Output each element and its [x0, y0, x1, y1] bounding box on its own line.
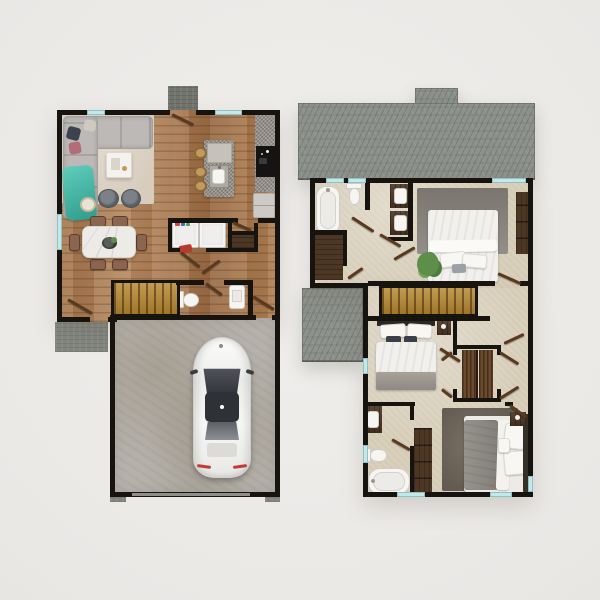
- closet-rod-2: [479, 350, 493, 398]
- car-roof-antenna: [220, 405, 224, 409]
- kitchen-laundry-wall-b: [258, 218, 275, 223]
- upper-bathtub-basin: [320, 191, 336, 229]
- dining-chair-right: [136, 234, 147, 251]
- bedroom2-right-wall: [453, 321, 457, 345]
- bedroom3-lamp: [515, 415, 520, 420]
- closet-bottom-wall: [453, 398, 501, 402]
- round-side-table: [80, 197, 96, 212]
- dining-chair-bottom-1: [90, 259, 106, 270]
- sf-window-left-1: [363, 358, 368, 374]
- lower-bath-top-wall: [363, 402, 415, 406]
- side-porch: [55, 322, 108, 352]
- sf-bottom-wall-c: [512, 492, 533, 497]
- refrigerator-seam: [253, 205, 275, 206]
- coffee-table-decor: [122, 166, 127, 171]
- closet-left-wall-b: [453, 389, 457, 402]
- island-sink: [212, 169, 225, 184]
- island-faucet: [218, 166, 221, 169]
- lower-bathtub-faucet: [371, 479, 375, 483]
- laundry-bottom-wall-b: [206, 248, 232, 252]
- garage-top-wall-b: [272, 315, 280, 320]
- main-roof: [298, 103, 535, 180]
- laundry-left-wall: [168, 218, 172, 252]
- ottoman-pouf-left: [98, 189, 119, 208]
- upper-bath-bottom-wall: [310, 230, 343, 235]
- sf-window-bottom-2: [490, 492, 512, 497]
- front-stoop: [168, 86, 198, 112]
- closet-rod-divider: [476, 350, 478, 398]
- cooktop-knob-1: [266, 150, 269, 153]
- lower-bath-sink: [367, 411, 379, 428]
- upper-bathtub-faucet: [326, 188, 330, 192]
- sf-top-wall-c: [366, 178, 492, 183]
- upper-toilet-bowl: [349, 188, 360, 205]
- teal-throw-blanket: [62, 165, 98, 221]
- garage-top-wall-a: [110, 315, 256, 320]
- half-bath-top-wall-a: [176, 280, 204, 285]
- ff-window-top-2: [215, 110, 242, 115]
- garage-pad-right: [265, 497, 280, 502]
- linen-closet-right-wall: [343, 230, 347, 266]
- ottoman-pouf-right: [121, 189, 141, 208]
- linen-closet-floor: [315, 235, 343, 280]
- cooktop-knob-2: [261, 153, 263, 155]
- sf-upper-bottom-wall: [310, 283, 368, 288]
- car-rear-window: [205, 422, 239, 440]
- lower-toilet-bowl: [370, 449, 387, 462]
- half-bath-right-wall: [248, 280, 253, 320]
- sf-window-top-1: [326, 178, 344, 183]
- stairs-first-floor: [111, 280, 180, 317]
- stairs-second-floor: [379, 285, 478, 317]
- dining-chair-left: [69, 234, 80, 251]
- dryer: [199, 221, 226, 248]
- sf-window-right: [528, 476, 533, 492]
- bar-stool-2: [194, 166, 207, 178]
- garage-left-wall: [110, 315, 115, 497]
- bedroom3-small-pillow: [498, 438, 510, 453]
- garage-door: [132, 493, 250, 496]
- closet-rod-1: [462, 350, 476, 398]
- pink-throw-pillow: [68, 141, 82, 155]
- bedroom1-dresser: [516, 192, 528, 254]
- sf-window-bottom-1: [397, 492, 425, 497]
- white-car: [193, 337, 251, 478]
- half-bath-sink: [232, 290, 242, 302]
- closet-top-wall: [453, 345, 501, 349]
- sf-bottom-wall-a: [363, 492, 397, 497]
- bedroom1-plant: [417, 252, 439, 276]
- sf-right-wall: [528, 178, 533, 497]
- centerpiece-plant: [111, 237, 117, 243]
- sf-bottom-wall-b: [425, 492, 490, 497]
- tall-wardrobe: [414, 428, 432, 494]
- bar-stool-3: [194, 180, 207, 192]
- lower-side-roof: [302, 288, 363, 362]
- garage-pad-left: [110, 497, 126, 502]
- ff-window-top-1: [87, 110, 105, 115]
- closet-left-wall-a: [453, 345, 457, 355]
- island-cutting-board: [207, 143, 232, 163]
- hall-closet-shelf: [232, 235, 254, 248]
- sf-window-top-3: [492, 178, 526, 183]
- floor-plan-scene: [0, 0, 600, 600]
- vanity-2-sink: [394, 215, 407, 231]
- coffee-table-tray: [111, 158, 120, 170]
- vanity-1-sink: [394, 188, 407, 204]
- bedroom2-duvet: [376, 342, 436, 374]
- laundry-closet-divider: [228, 218, 232, 252]
- car-hood-emblem: [219, 344, 223, 348]
- ff-top-wall-b: [105, 110, 170, 115]
- bedroom2-lamp: [441, 324, 446, 329]
- laundry-bottom-wall-a: [168, 248, 180, 252]
- ff-bottom-left-wall-a: [57, 317, 90, 322]
- car-trunk: [207, 443, 237, 457]
- cooktop-grate: [259, 158, 267, 164]
- bath-toilet-wall: [365, 183, 370, 210]
- bedroom1-left-wall: [408, 183, 413, 238]
- dining-chair-bottom-2: [112, 259, 128, 270]
- sf-window-top-2: [348, 178, 366, 183]
- car-windshield: [201, 366, 243, 393]
- lower-bath-right-wall-a: [410, 402, 414, 420]
- detergent-green: [186, 223, 190, 226]
- ff-top-wall-c: [196, 110, 215, 115]
- bedroom1-bottom-wall-b: [520, 281, 533, 286]
- bedroom2-gray-blanket: [376, 372, 436, 390]
- bar-stool-1: [194, 147, 207, 159]
- bedroom3-gray-blanket: [464, 420, 498, 490]
- hall-closet-right-wall: [254, 223, 258, 252]
- stairwell-bottom-wall: [368, 316, 490, 321]
- lower-bath-right-wall-b: [410, 446, 414, 497]
- ff-right-wall: [275, 110, 280, 497]
- sf-window-left-2: [363, 445, 368, 463]
- bedroom1-bottom-wall-a: [368, 281, 495, 286]
- ff-window-left: [57, 214, 62, 250]
- toilet-bowl-ff: [183, 293, 199, 307]
- cream-throw-pillow: [83, 119, 96, 132]
- lower-bathtub-basin: [373, 472, 405, 491]
- bedroom1-accent-pillow: [452, 264, 466, 274]
